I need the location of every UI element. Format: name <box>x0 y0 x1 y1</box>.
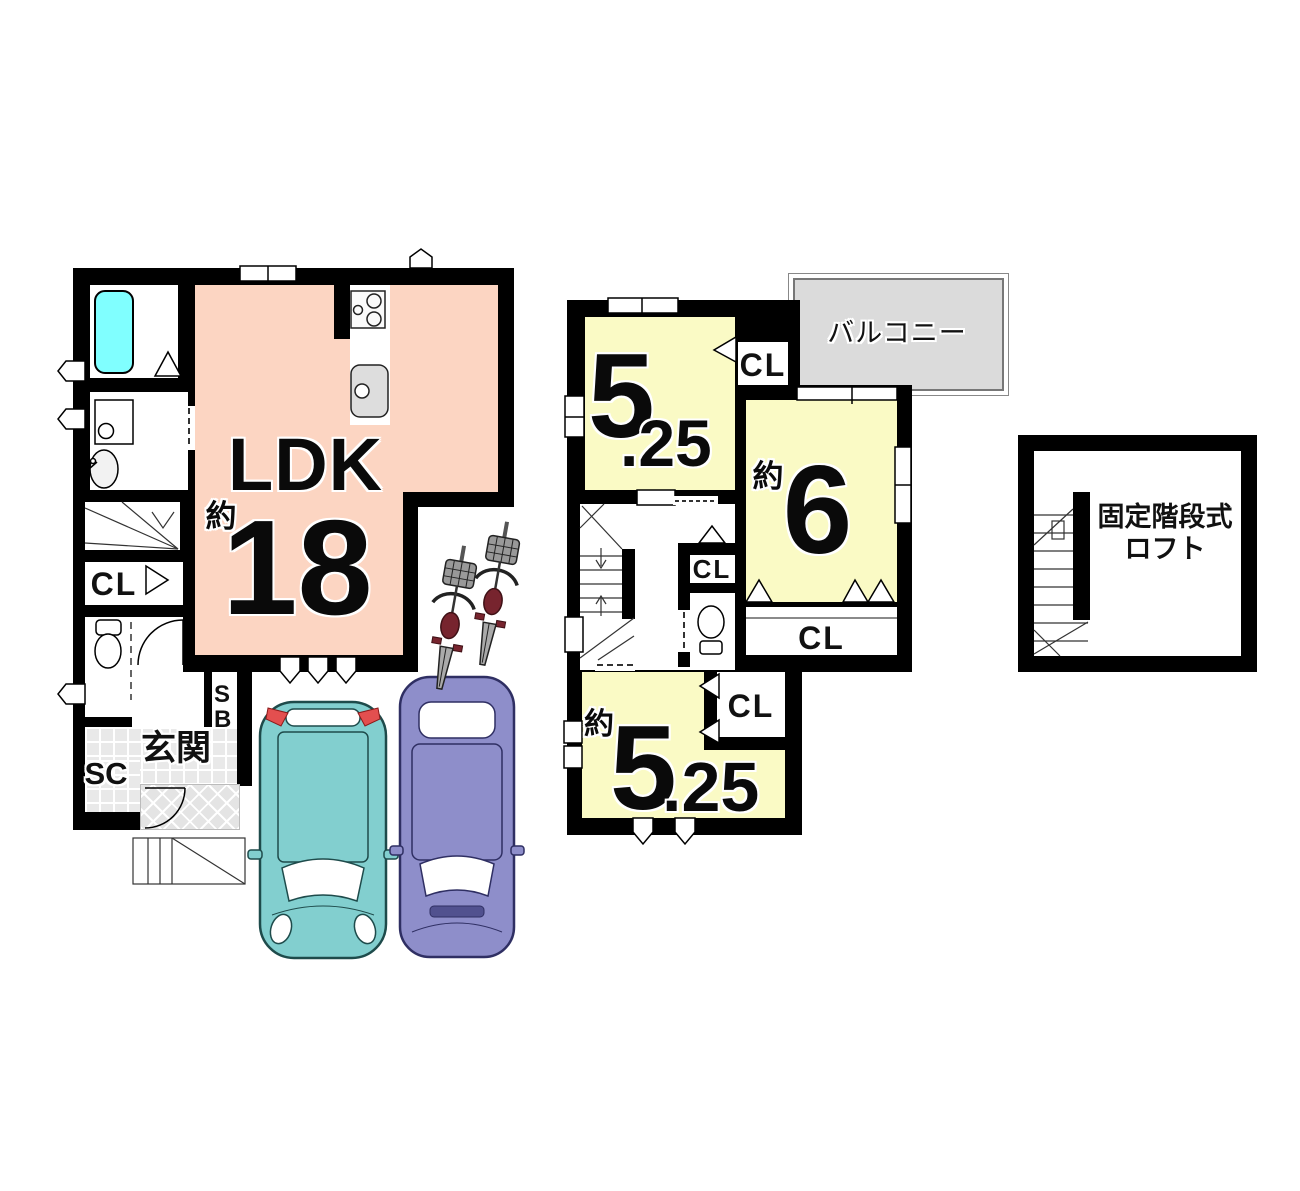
kitchen-wall <box>334 285 350 339</box>
loft-label-line1: 固定階段式 <box>1086 501 1244 533</box>
loft-label: 固定階段式 ロフト <box>1086 501 1244 566</box>
bathroom <box>90 285 178 378</box>
kitchen-counter <box>350 285 390 425</box>
closet-mid-wall-bottom <box>690 583 735 593</box>
closet-mid-label: CL <box>689 556 735 582</box>
bedroom-top-size-small: .25 <box>620 410 712 476</box>
shoebox-wall <box>204 672 212 727</box>
bedroom-right-size: 6 <box>780 448 855 573</box>
toilet-room-floor1 <box>85 617 132 717</box>
floorplan-canvas: LDK 約 18 CL 玄関 SC SB バルコニー 5 .25 CL 約 6 … <box>0 0 1300 1191</box>
closet-top-label: CL <box>738 349 788 381</box>
entrance-steps <box>133 838 245 884</box>
loft-label-line2: ロフト <box>1086 533 1244 565</box>
porch-tile <box>140 784 240 830</box>
bicycle-right-icon <box>461 518 528 668</box>
shoe-closet-label: SC <box>81 758 131 789</box>
entrance-label: 玄関 <box>115 731 237 766</box>
shoe-box-label: SB <box>214 682 238 732</box>
closet-band-label: CL <box>746 622 897 654</box>
car-teal <box>248 702 398 958</box>
washroom <box>90 392 188 490</box>
bedroom-bottom-size-small: .25 <box>662 752 759 822</box>
stairs-area-floor1 <box>85 502 180 550</box>
closet-floor1-label: CL <box>84 568 144 600</box>
ldk-label: LDK <box>228 428 372 502</box>
ldk-size-label: 18 <box>215 500 380 635</box>
closet-floor1-hall <box>143 562 183 605</box>
balcony-label: バルコニー <box>795 320 999 347</box>
bicycle-left-icon <box>418 542 485 692</box>
stairs-wall-floor2 <box>622 549 635 619</box>
car-purple <box>390 677 524 957</box>
closet-bottom-label: CL <box>717 690 785 722</box>
